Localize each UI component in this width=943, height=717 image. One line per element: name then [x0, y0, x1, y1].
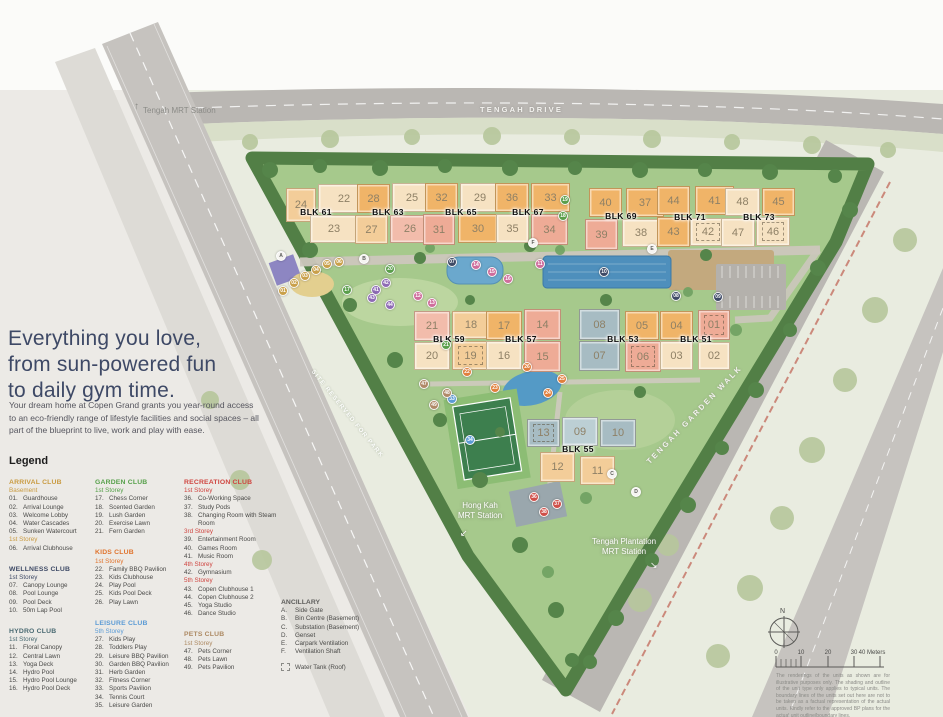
legend-item-label: Yoga Deck	[23, 661, 93, 669]
unit-number: 32	[435, 192, 447, 204]
legend-item: 42.Gymnasium	[184, 569, 284, 577]
facility-marker: A	[276, 251, 286, 261]
legend-item-label: Toddlers Play	[109, 644, 183, 652]
ancillary-item: D.Genset	[281, 632, 403, 640]
legend-item-label: Floral Canopy	[23, 644, 93, 652]
unit-number: 11	[592, 465, 603, 477]
legend-item: 34.Tennis Court	[95, 694, 183, 702]
legend-item-number: 45.	[184, 602, 198, 610]
legend-club: LEISURE CLUB5th Storey27.Kids Play28.Tod…	[95, 620, 183, 710]
legend-item-label: Gymnasium	[198, 569, 284, 577]
facility-marker: 17	[342, 285, 352, 295]
ancillary-item-label: Substation (Basement)	[295, 624, 403, 632]
unit-number: 38	[635, 227, 647, 239]
legend-item-label: Sports Pavilion	[109, 685, 183, 693]
facility-marker: 20	[385, 264, 395, 274]
block-label: BLK 63	[372, 207, 404, 217]
legend-item: 09.Pool Deck	[9, 599, 93, 607]
legend-item-label: Hydro Pool Deck	[23, 685, 93, 693]
legend-item-label: Canopy Lounge	[23, 582, 93, 590]
legend-item-number: 47.	[184, 648, 198, 656]
legend-item: 10.50m Lap Pool	[9, 607, 93, 615]
legend-item-label: Sunken Watercourt	[23, 528, 93, 536]
facility-marker: 15	[487, 267, 497, 277]
legend-club-name: KIDS CLUB	[95, 549, 183, 557]
facility-marker: 25	[557, 374, 567, 384]
legend-item-label: Chess Corner	[109, 495, 183, 503]
legend-item: 14.Hydro Pool	[9, 669, 93, 677]
legend-club: WELLNESS CLUB1st Storey07.Canopy Lounge0…	[9, 566, 93, 615]
page-title: Everything you love, from sun-powered fu…	[8, 326, 216, 404]
ancillary-item: C.Substation (Basement)	[281, 624, 403, 632]
legend-storey-label: 1st Storey	[9, 574, 93, 582]
unit-number: 05	[636, 320, 648, 332]
unit-number: 27	[365, 224, 377, 236]
ancillary-item-label: Genset	[295, 632, 403, 640]
legend-item-label: Pets Lawn	[198, 656, 284, 664]
legend-item-number: 28.	[95, 644, 109, 652]
water-tank-roof-outline	[696, 223, 720, 241]
tengah-plantation-mrt-station-label: Tengah Plantation MRT Station	[592, 537, 656, 557]
legend-club: RECREATION CLUB1st Storey36.Co-Working S…	[184, 479, 284, 618]
unit-number: 37	[639, 197, 651, 209]
legend-item-number: 40.	[184, 545, 198, 553]
legend-item-number: 42.	[184, 569, 198, 577]
building-unit: 38	[622, 219, 660, 247]
legend-item-number: 12.	[9, 653, 23, 661]
unit-number: 09	[574, 426, 586, 438]
facility-marker: 12	[413, 291, 423, 301]
legend-item-label: Garden BBQ Pavilion	[109, 661, 183, 669]
legend-item: 40.Games Room	[184, 545, 284, 553]
legend-item-label: Guardhouse	[23, 495, 93, 503]
water-tank-roof-outline	[704, 315, 724, 335]
legend-item-label: Fitness Corner	[109, 677, 183, 685]
hong-kah-arrow-icon: ↙	[460, 528, 468, 539]
legend-storey-label: 1st Storey	[9, 536, 93, 544]
water-tank-roof-outline	[631, 346, 655, 367]
ancillary-item-label: Carpark Ventilation	[295, 640, 403, 648]
legend-item-number: 41.	[184, 553, 198, 561]
unit-number: 26	[404, 223, 416, 235]
legend-item-number: 18.	[95, 504, 109, 512]
legend-item-label: Play Pool	[109, 582, 183, 590]
legend-title: Legend	[9, 455, 48, 467]
legend-item-number: 05.	[9, 528, 23, 536]
legend-item-number: 36.	[184, 495, 198, 503]
unit-number: 02	[708, 350, 720, 362]
legend-item-label: Scented Garden	[109, 504, 183, 512]
block-label: BLK 73	[743, 212, 775, 222]
legend-storey-label: 3rd Storey	[184, 528, 284, 536]
legend-item: 07.Canopy Lounge	[9, 582, 93, 590]
legend-item-label: Leisure Garden	[109, 702, 183, 710]
unit-number: 16	[498, 350, 510, 362]
legend-item-number: 20.	[95, 520, 109, 528]
block-label: BLK 51	[680, 334, 712, 344]
ancillary-item-letter: E.	[281, 640, 295, 648]
unit-number: 12	[551, 461, 563, 473]
legend-item-number: 37.	[184, 504, 198, 512]
building-unit: 16	[486, 341, 522, 370]
unit-number: 29	[474, 192, 486, 204]
unit-number: 41	[708, 195, 720, 207]
legend-item-label: Exercise Lawn	[109, 520, 183, 528]
legend-club-name: ARRIVAL CLUB	[9, 479, 93, 487]
unit-number: 22	[338, 193, 350, 205]
road-label-tengah-drive: TENGAH DRIVE	[480, 105, 563, 114]
legend-item: 05.Sunken Watercourt	[9, 528, 93, 536]
legend-item: 38.Changing Room with Steam Room	[184, 512, 284, 528]
legend-item-number: 46.	[184, 610, 198, 618]
legend-item: 27.Kids Play	[95, 636, 183, 644]
water-tank-legend-row: Water Tank (Roof)	[281, 663, 403, 671]
plantation-line2: MRT Station	[592, 547, 656, 557]
facility-marker: B	[359, 254, 369, 264]
ancillary-item-label: Ventilation Shaft	[295, 648, 403, 656]
legend-item-number: 06.	[9, 545, 23, 553]
hong-kah-line2: MRT Station	[458, 511, 502, 521]
legend-item: 04.Water Cascades	[9, 520, 93, 528]
legend-club: KIDS CLUB1st Storey22.Family BBQ Pavilio…	[95, 549, 183, 606]
legend-column-3: RECREATION CLUB1st Storey36.Co-Working S…	[184, 479, 284, 685]
legend-item: 22.Family BBQ Pavilion	[95, 566, 183, 574]
unit-number: 17	[498, 320, 510, 332]
facility-marker: 08	[671, 291, 681, 301]
legend-item-number: 08.	[9, 590, 23, 598]
ancillary-item: E.Carpark Ventilation	[281, 640, 403, 648]
hong-kah-mrt-station-label: Hong Kah MRT Station	[458, 501, 502, 521]
unit-number: 39	[595, 229, 607, 241]
facility-marker: 37	[552, 499, 562, 509]
legend-item: 49.Pets Pavilion	[184, 664, 284, 672]
legend-item-number: 11.	[9, 644, 23, 652]
building-unit: 39	[585, 219, 618, 250]
legend-club: PETS CLUB1st Storey47.Pets Corner48.Pets…	[184, 631, 284, 672]
building-unit: 35	[496, 214, 529, 243]
unit-number: 35	[506, 223, 518, 235]
legend-item-label: Hydro Pool	[23, 669, 93, 677]
block-label: BLK 67	[512, 207, 544, 217]
legend-item: 29.Leisure BBQ Pavilion	[95, 653, 183, 661]
legend-item-number: 24.	[95, 582, 109, 590]
facility-marker: 47	[419, 379, 429, 389]
ancillary-item-label: Bin Centre (Basement)	[295, 615, 403, 623]
ancillary-item-label: Side Gate	[295, 607, 403, 615]
ancillary-item: B.Bin Centre (Basement)	[281, 615, 403, 623]
building-unit: 19	[452, 341, 489, 370]
facility-marker: 14	[471, 260, 481, 270]
legend-item-number: 44.	[184, 594, 198, 602]
legend-item: 25.Kids Pool Deck	[95, 590, 183, 598]
legend-item: 13.Yoga Deck	[9, 661, 93, 669]
legend-item-label: Yoga Studio	[198, 602, 284, 610]
legend-column-1: ARRIVAL CLUBBasement01.Guardhouse02.Arri…	[9, 479, 93, 707]
building-unit: 10	[600, 419, 636, 447]
facility-marker: 11	[535, 259, 545, 269]
legend-item-number: 32.	[95, 677, 109, 685]
legend-item-label: Herb Garden	[109, 669, 183, 677]
facility-marker: C	[607, 469, 617, 479]
intro-paragraph: Your dream home at Copen Grand grants yo…	[9, 399, 261, 437]
building-unit: 23	[310, 215, 358, 243]
legend-item-number: 25.	[95, 590, 109, 598]
headline-line2: from sun-powered fun	[8, 352, 216, 378]
unit-number: 07	[593, 350, 605, 362]
ancillary-item-letter: A.	[281, 607, 295, 615]
legend-item-number: 21.	[95, 528, 109, 536]
unit-number: 31	[433, 224, 445, 236]
building-unit: 07	[579, 341, 620, 371]
legend-item-label: Dance Studio	[198, 610, 284, 618]
water-tank-icon	[281, 663, 290, 671]
disclaimer-text: The renderings of the units as shown are…	[776, 673, 890, 717]
legend-item-label: Pool Lounge	[23, 590, 93, 598]
facility-marker: 03	[300, 271, 310, 281]
facility-marker: 48	[442, 388, 452, 398]
facility-marker: 44	[385, 300, 395, 310]
facility-marker: 26	[522, 362, 532, 372]
legend-item-number: 02.	[9, 504, 23, 512]
legend-item-number: 01.	[9, 495, 23, 503]
legend-item-label: Kids Play	[109, 636, 183, 644]
facility-marker: 07	[447, 257, 457, 267]
ancillary-item-letter: D.	[281, 632, 295, 640]
scale-tick-label: 30	[851, 650, 858, 656]
legend-item-number: 16.	[9, 685, 23, 693]
facility-marker: 49	[429, 400, 439, 410]
headline-line1: Everything you love,	[8, 326, 216, 352]
ancillary-items: A.Side GateB.Bin Centre (Basement)C.Subs…	[281, 607, 403, 656]
building-unit: 06	[625, 341, 661, 372]
unit-number: 28	[367, 193, 379, 205]
block-label: BLK 57	[505, 334, 537, 344]
facility-marker: F	[528, 238, 538, 248]
facility-marker: 06	[334, 257, 344, 267]
facility-marker: 09	[713, 292, 723, 302]
legend-club-name: PETS CLUB	[184, 631, 284, 639]
facility-marker: 19	[560, 195, 570, 205]
legend-club: ARRIVAL CLUBBasement01.Guardhouse02.Arri…	[9, 479, 93, 553]
legend-item-label: Pets Corner	[198, 648, 284, 656]
facility-marker: 42	[381, 278, 391, 288]
legend-storey-label: 1st Storey	[184, 640, 284, 648]
legend-item-label: Play Lawn	[109, 599, 183, 607]
block-label: BLK 55	[562, 444, 594, 454]
facility-marker: D	[631, 487, 641, 497]
facility-marker: 36	[529, 492, 539, 502]
facility-marker: 23	[490, 383, 500, 393]
legend-item: 43.Copen Clubhouse 1	[184, 586, 284, 594]
legend-item: 12.Central Lawn	[9, 653, 93, 661]
facility-marker: 16	[503, 274, 513, 284]
legend-item-label: Copen Clubhouse 2	[198, 594, 284, 602]
legend-item-number: 13.	[9, 661, 23, 669]
building-unit: 09	[562, 417, 598, 446]
facility-marker: E	[647, 244, 657, 254]
legend-item: 20.Exercise Lawn	[95, 520, 183, 528]
hong-kah-line1: Hong Kah	[458, 501, 502, 511]
legend-item-number: 30.	[95, 661, 109, 669]
facility-marker: 02	[289, 278, 299, 288]
legend-item-label: Welcome Lobby	[23, 512, 93, 520]
legend-item: 18.Scented Garden	[95, 504, 183, 512]
legend-item-number: 07.	[9, 582, 23, 590]
legend-item: 30.Garden BBQ Pavilion	[95, 661, 183, 669]
building-unit: 27	[355, 215, 388, 244]
legend-item: 03.Welcome Lobby	[9, 512, 93, 520]
legend-storey-label: Basement	[9, 487, 93, 495]
facility-marker: 34	[465, 435, 475, 445]
legend-item-label: 50m Lap Pool	[23, 607, 93, 615]
legend-item-label: Arrival Lounge	[23, 504, 93, 512]
water-tank-roof-outline	[762, 222, 784, 241]
unit-number: 25	[406, 192, 418, 204]
site-plan-page: TENGAH DRIVE TENGAH GARDEN WALK SITE RES…	[0, 0, 943, 717]
legend-item: 37.Study Pods	[184, 504, 284, 512]
plantation-arrow-icon: ↘	[650, 560, 658, 571]
tengah-mrt-station-label: Tengah MRT Station	[143, 106, 216, 115]
facility-marker: 04	[311, 265, 321, 275]
legend-item: 33.Sports Pavilion	[95, 685, 183, 693]
legend-item-number: 39.	[184, 536, 198, 544]
legend-item-number: 33.	[95, 685, 109, 693]
legend-item-label: Pool Deck	[23, 599, 93, 607]
compass-icon	[766, 614, 806, 654]
unit-number: 44	[667, 195, 679, 207]
facility-marker: 24	[543, 388, 553, 398]
unit-number: 45	[772, 196, 784, 208]
unit-number: 08	[593, 319, 605, 331]
legend-item: 23.Kids Clubhouse	[95, 574, 183, 582]
legend-item-number: 43.	[184, 586, 198, 594]
legend-item-label: Lush Garden	[109, 512, 183, 520]
legend-ancillary: ANCILLARY A.Side GateB.Bin Centre (Basem…	[281, 599, 403, 671]
legend-item-number: 27.	[95, 636, 109, 644]
legend-item-label: Arrival Clubhouse	[23, 545, 93, 553]
legend-storey-label: 5th Storey	[184, 577, 284, 585]
facility-marker: 38	[539, 507, 549, 517]
legend-column-2: GARDEN CLUB1st Storey17.Chess Corner18.S…	[95, 479, 183, 717]
facility-marker: 05	[322, 259, 332, 269]
building-unit: 12	[540, 452, 575, 482]
legend-item-label: Family BBQ Pavilion	[109, 566, 183, 574]
legend-item-number: 03.	[9, 512, 23, 520]
tengah-mrt-arrow-icon: ↑	[134, 101, 139, 112]
legend-item-number: 15.	[9, 677, 23, 685]
legend-storey-label: 1st Storey	[184, 487, 284, 495]
unit-number: 43	[667, 226, 679, 238]
facility-marker: 13	[427, 298, 437, 308]
scale-tick-label: 0	[774, 650, 777, 656]
legend-item-label: Hydro Pool Lounge	[23, 677, 93, 685]
legend-item: 15.Hydro Pool Lounge	[9, 677, 93, 685]
legend-item-number: 38.	[184, 512, 198, 528]
legend-item-label: Changing Room with Steam Room	[198, 512, 284, 528]
legend-club-name: RECREATION CLUB	[184, 479, 284, 487]
legend-item: 35.Leisure Garden	[95, 702, 183, 710]
legend-club: GARDEN CLUB1st Storey17.Chess Corner18.S…	[95, 479, 183, 536]
legend-item-label: Leisure BBQ Pavilion	[109, 653, 183, 661]
unit-number: 21	[426, 320, 438, 332]
unit-number: 04	[670, 320, 682, 332]
legend-item: 45.Yoga Studio	[184, 602, 284, 610]
block-label: BLK 71	[674, 212, 706, 222]
water-tank-roof-outline	[458, 346, 483, 365]
building-unit: 30	[458, 214, 498, 243]
legend-item: 01.Guardhouse	[9, 495, 93, 503]
legend-club: HYDRO CLUB1st Storey11.Floral Canopy12.C…	[9, 628, 93, 694]
block-label: BLK 61	[300, 207, 332, 217]
ancillary-item-letter: C.	[281, 624, 295, 632]
legend-item-label: Copen Clubhouse 1	[198, 586, 284, 594]
legend-item: 36.Co-Working Space	[184, 495, 284, 503]
unit-number: 03	[670, 350, 682, 362]
legend-item-number: 22.	[95, 566, 109, 574]
legend-item: 08.Pool Lounge	[9, 590, 93, 598]
facility-marker: 22	[462, 367, 472, 377]
unit-number: 30	[472, 223, 484, 235]
legend-item-label: Kids Pool Deck	[109, 590, 183, 598]
legend-item: 31.Herb Garden	[95, 669, 183, 677]
unit-number: 23	[328, 223, 340, 235]
legend-item: 26.Play Lawn	[95, 599, 183, 607]
legend-item-label: Central Lawn	[23, 653, 93, 661]
legend-item-label: Study Pods	[198, 504, 284, 512]
legend-item-number: 19.	[95, 512, 109, 520]
legend-item-number: 34.	[95, 694, 109, 702]
building-unit: 02	[698, 342, 730, 370]
unit-number: 33	[544, 192, 556, 204]
building-unit: 13	[527, 419, 560, 447]
unit-number: 40	[599, 197, 611, 209]
water-tank-label: Water Tank (Roof)	[295, 664, 403, 671]
legend-item: 48.Pets Lawn	[184, 656, 284, 664]
unit-number: 36	[506, 192, 518, 204]
unit-number: 47	[732, 227, 744, 239]
facility-marker: 43	[367, 293, 377, 303]
legend-item-number: 29.	[95, 653, 109, 661]
legend-item: 06.Arrival Clubhouse	[9, 545, 93, 553]
facility-marker: 10	[599, 267, 609, 277]
facility-marker: 21	[441, 340, 451, 350]
legend-item: 47.Pets Corner	[184, 648, 284, 656]
legend-item-label: Pets Pavilion	[198, 664, 284, 672]
legend-item-number: 49.	[184, 664, 198, 672]
building-unit: 47	[721, 218, 755, 247]
legend-item: 41.Music Room	[184, 553, 284, 561]
legend-item-number: 35.	[95, 702, 109, 710]
legend-storey-label: 5th Storey	[95, 628, 183, 636]
legend-item: 28.Toddlers Play	[95, 644, 183, 652]
legend-item-number: 31.	[95, 669, 109, 677]
legend-item-label: Games Room	[198, 545, 284, 553]
building-unit: 03	[660, 341, 693, 370]
legend-item-label: Tennis Court	[109, 694, 183, 702]
legend-item: 44.Copen Clubhouse 2	[184, 594, 284, 602]
legend-item-number: 10.	[9, 607, 23, 615]
legend-item-number: 14.	[9, 669, 23, 677]
legend-item-label: Fern Garden	[109, 528, 183, 536]
legend-item-label: Entertainment Room	[198, 536, 284, 544]
legend-item: 46.Dance Studio	[184, 610, 284, 618]
legend-item-label: Music Room	[198, 553, 284, 561]
water-tank-roof-outline	[533, 424, 554, 442]
unit-number: 18	[465, 319, 477, 331]
unit-number: 14	[536, 319, 548, 331]
legend-item-label: Co-Working Space	[198, 495, 284, 503]
legend-item: 32.Fitness Corner	[95, 677, 183, 685]
